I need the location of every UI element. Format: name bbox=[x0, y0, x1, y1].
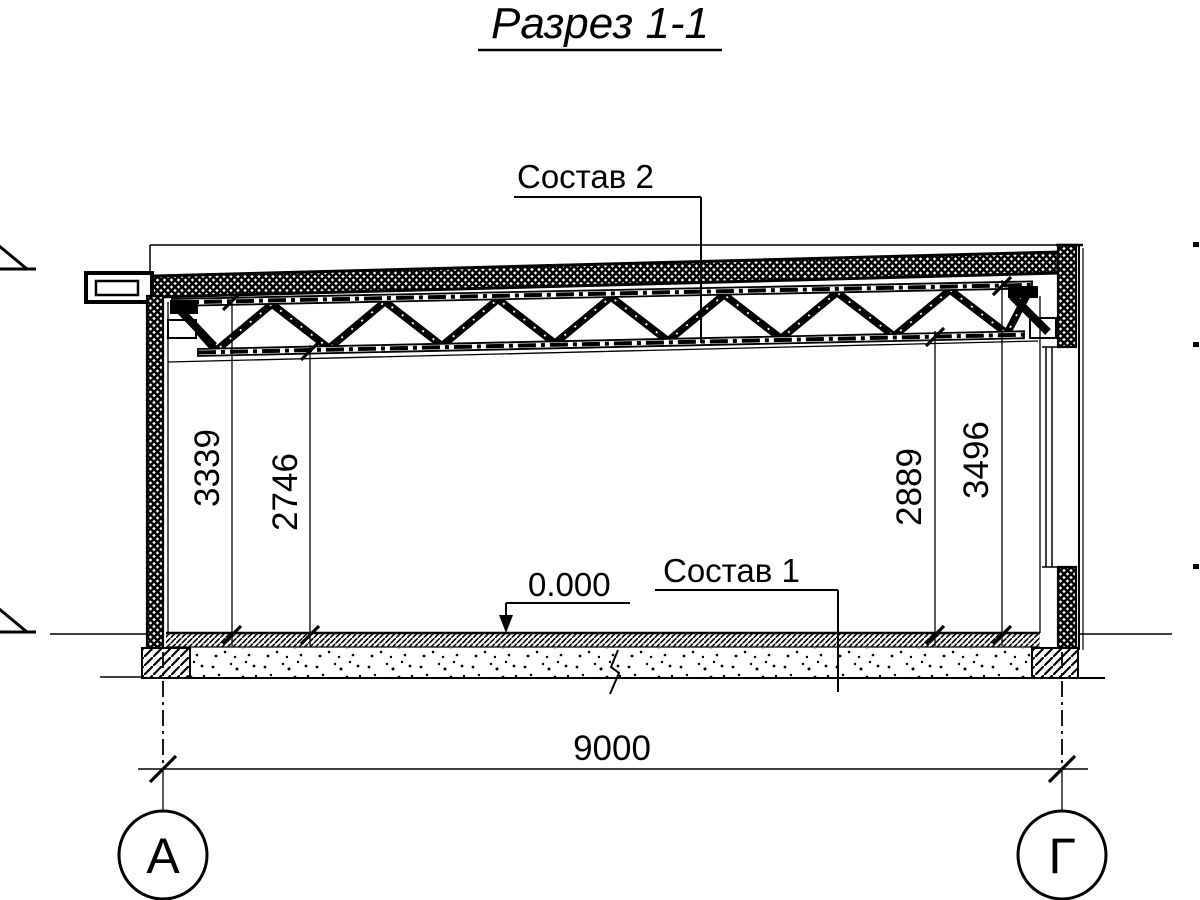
dimension-2746-text: 2746 bbox=[266, 453, 305, 531]
axis-right-label: Г bbox=[1048, 828, 1075, 884]
right-wall-lower-section bbox=[1058, 567, 1076, 648]
dimension-9000: 9000 bbox=[138, 729, 1088, 782]
floor-slab bbox=[50, 633, 1172, 694]
dimension-9000-text: 9000 bbox=[573, 729, 651, 768]
floor-screed bbox=[166, 634, 1040, 647]
floor-underlayment bbox=[190, 648, 1032, 677]
foundation-left bbox=[142, 648, 190, 678]
callout-roof-assembly: Состав 2 bbox=[514, 158, 701, 343]
elevation-arrow bbox=[499, 615, 513, 633]
dimension-2746: 2746 bbox=[266, 342, 319, 646]
right-wall bbox=[1040, 245, 1083, 650]
callout-floor-assembly-text: Состав 1 bbox=[663, 552, 800, 589]
window-section bbox=[1042, 347, 1058, 567]
right-wall-upper-section bbox=[1058, 245, 1076, 347]
axis-left: А bbox=[119, 652, 207, 899]
section-drawing: Разрез 1-1 bbox=[0, 0, 1200, 900]
dimension-3339-text: 3339 bbox=[188, 429, 227, 507]
elevation-mark-text: 0.000 bbox=[528, 566, 611, 603]
section-drawing-page: Разрез 1-1 bbox=[0, 0, 1200, 900]
elevation-mark-zero: 0.000 bbox=[499, 566, 630, 633]
callout-roof-assembly-text: Состав 2 bbox=[517, 158, 654, 195]
dimension-3496-text: 3496 bbox=[957, 421, 996, 499]
dimension-2889: 2889 bbox=[890, 328, 944, 646]
level-mark-top-left bbox=[0, 245, 36, 269]
level-marks-right-edge bbox=[1193, 242, 1199, 569]
eave-gutter bbox=[86, 273, 152, 302]
drawing-title: Разрез 1-1 bbox=[478, 0, 722, 50]
level-mark-bottom-left bbox=[0, 608, 36, 632]
truss-bearing-left bbox=[168, 300, 214, 346]
axis-right: Г bbox=[1018, 652, 1106, 899]
axis-left-label: А bbox=[146, 828, 180, 884]
drawing-title-text: Разрез 1-1 bbox=[491, 0, 709, 48]
foundation-right bbox=[1032, 648, 1078, 678]
left-wall bbox=[147, 296, 168, 648]
dimension-2889-text: 2889 bbox=[890, 448, 929, 526]
